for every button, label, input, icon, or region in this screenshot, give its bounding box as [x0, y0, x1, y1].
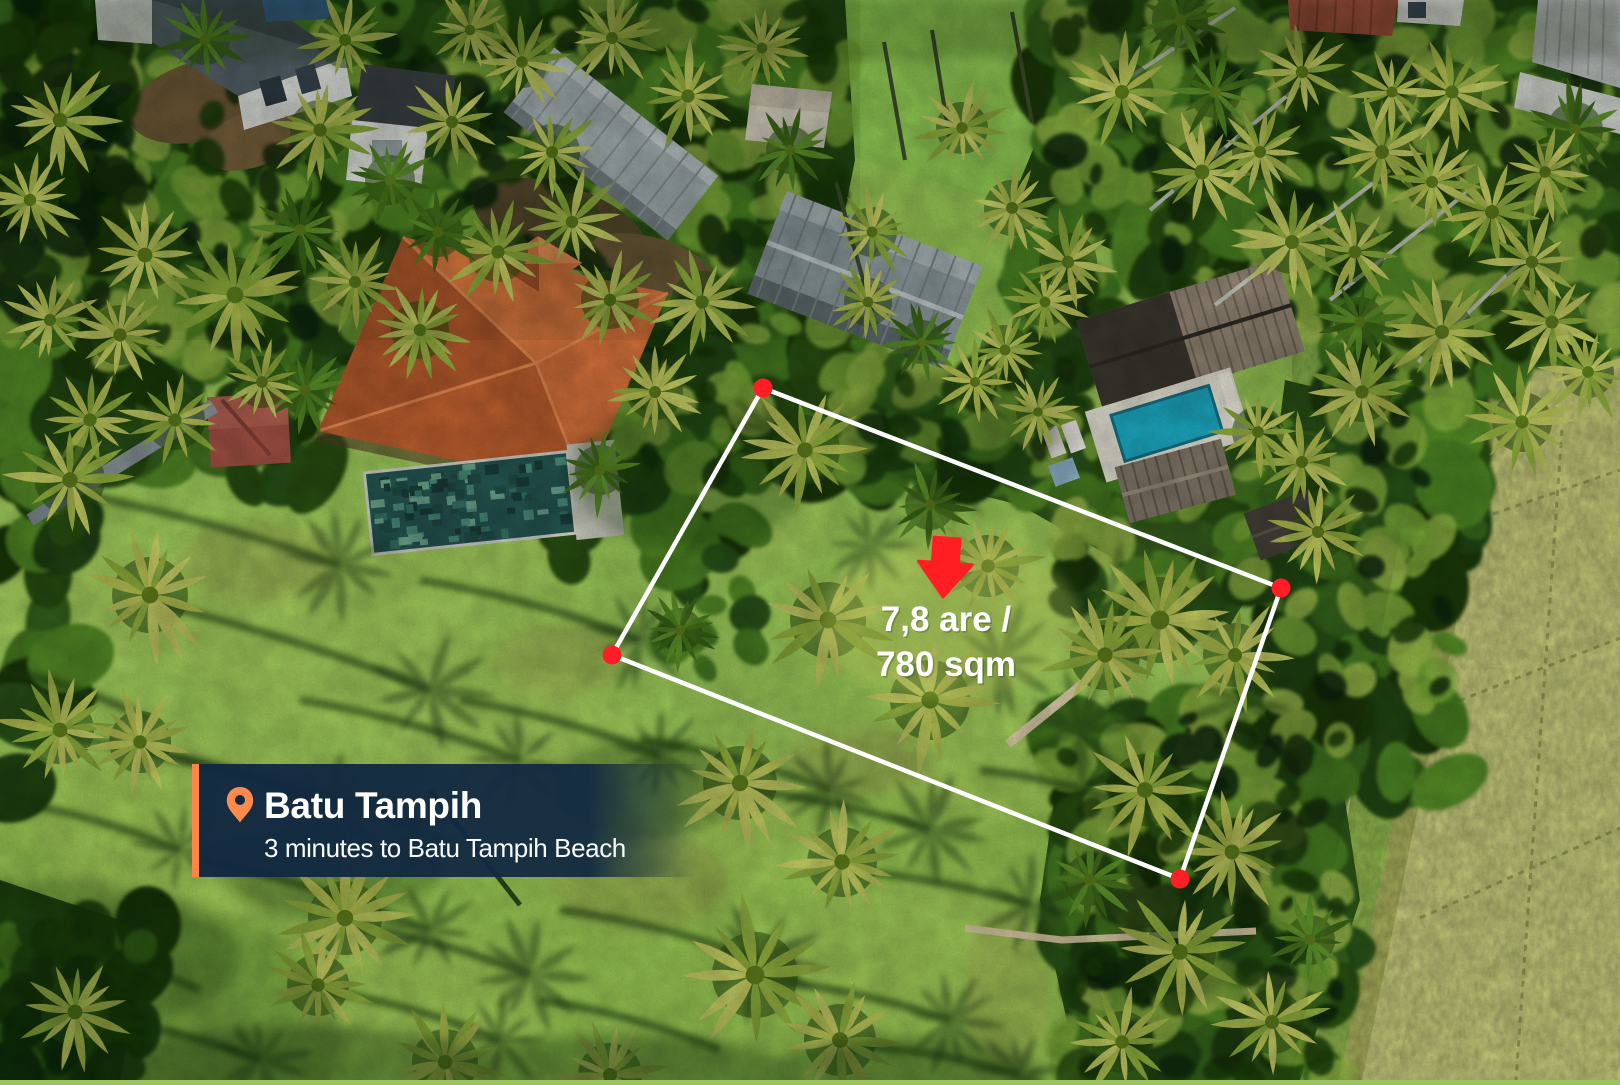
svg-text:3 minutes to Batu Tampih Beach: 3 minutes to Batu Tampih Beach: [264, 833, 626, 863]
svg-text:780 sqm: 780 sqm: [876, 645, 1016, 684]
svg-text:Batu Tampih: Batu Tampih: [264, 785, 482, 826]
svg-text:7,8 are /: 7,8 are /: [881, 600, 1012, 639]
